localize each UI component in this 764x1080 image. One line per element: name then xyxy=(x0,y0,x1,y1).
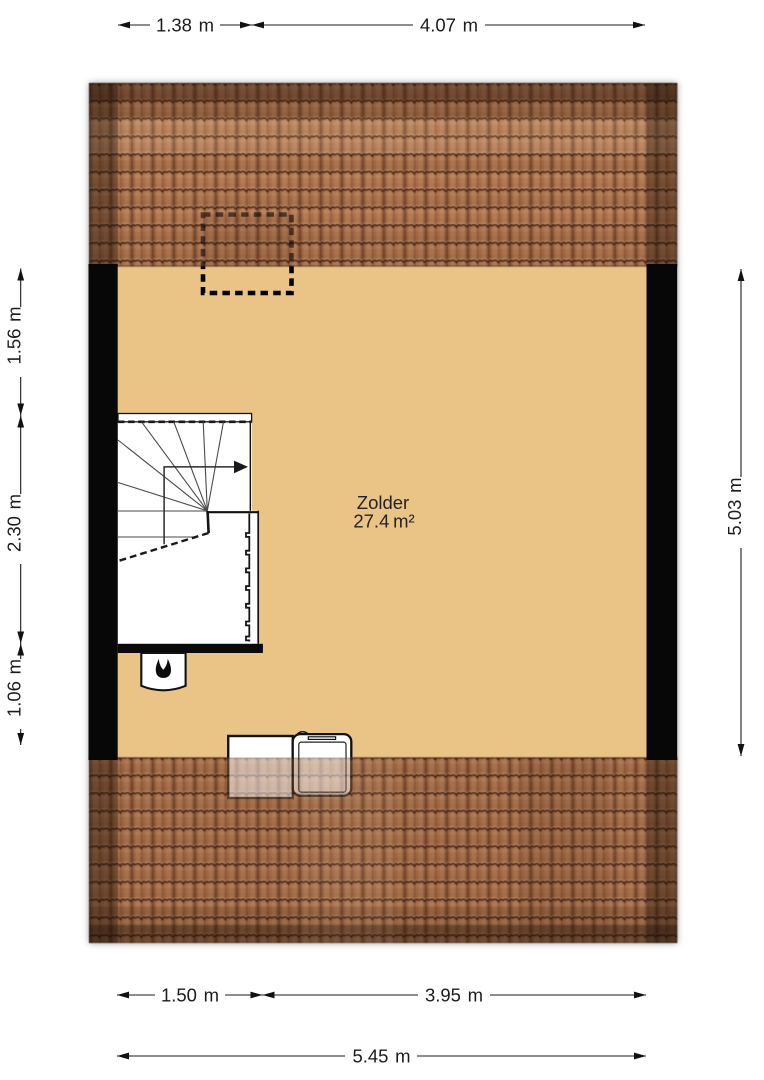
svg-text:1.56 m: 1.56 m xyxy=(4,306,25,364)
svg-text:5.45 m: 5.45 m xyxy=(352,1046,410,1067)
svg-text:1.50 m: 1.50 m xyxy=(161,985,219,1006)
svg-text:1.38 m: 1.38 m xyxy=(156,15,214,36)
svg-text:2.30 m: 2.30 m xyxy=(4,494,25,552)
svg-text:4.07 m: 4.07 m xyxy=(420,15,478,36)
svg-text:27.4 m²: 27.4 m² xyxy=(353,511,414,532)
svg-text:5.03 m: 5.03 m xyxy=(724,477,745,535)
svg-text:3.95 m: 3.95 m xyxy=(425,985,483,1006)
svg-text:1.06 m: 1.06 m xyxy=(4,659,25,717)
